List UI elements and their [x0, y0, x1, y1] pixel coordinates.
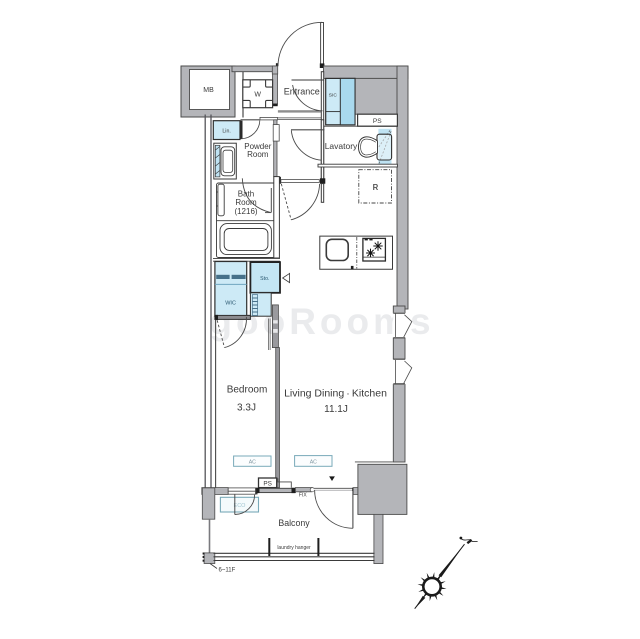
svg-text:(1216): (1216)	[234, 207, 257, 216]
svg-text:Living Dining · Kitchen: Living Dining · Kitchen	[284, 387, 387, 399]
svg-text:6~11F: 6~11F	[219, 567, 236, 573]
svg-text:FIX: FIX	[299, 493, 307, 499]
svg-text:laundry hanger: laundry hanger	[277, 545, 311, 551]
svg-text:PS: PS	[263, 480, 272, 487]
svg-text:ECO: ECO	[234, 503, 247, 509]
svg-text:PS: PS	[373, 118, 382, 125]
svg-text:AC: AC	[310, 459, 317, 465]
svg-text:Bedroom: Bedroom	[227, 385, 268, 396]
svg-text:Lin.: Lin.	[222, 128, 230, 134]
svg-text:3.3J: 3.3J	[237, 403, 256, 414]
svg-text:R: R	[373, 183, 379, 192]
svg-text:Entrance: Entrance	[284, 86, 320, 96]
svg-text:11.1J: 11.1J	[324, 404, 348, 415]
svg-text:Balcony: Balcony	[278, 518, 310, 528]
svg-text:Sto.: Sto.	[260, 276, 269, 282]
svg-text:W: W	[254, 92, 261, 99]
svg-text:WIC: WIC	[225, 301, 236, 307]
svg-text:Lavatory: Lavatory	[325, 141, 358, 151]
svg-text:Room: Room	[247, 150, 269, 159]
svg-text:AC: AC	[249, 460, 256, 466]
svg-text:MB: MB	[203, 87, 214, 94]
svg-text:SIC: SIC	[329, 92, 338, 98]
svg-text:Room: Room	[235, 198, 257, 207]
